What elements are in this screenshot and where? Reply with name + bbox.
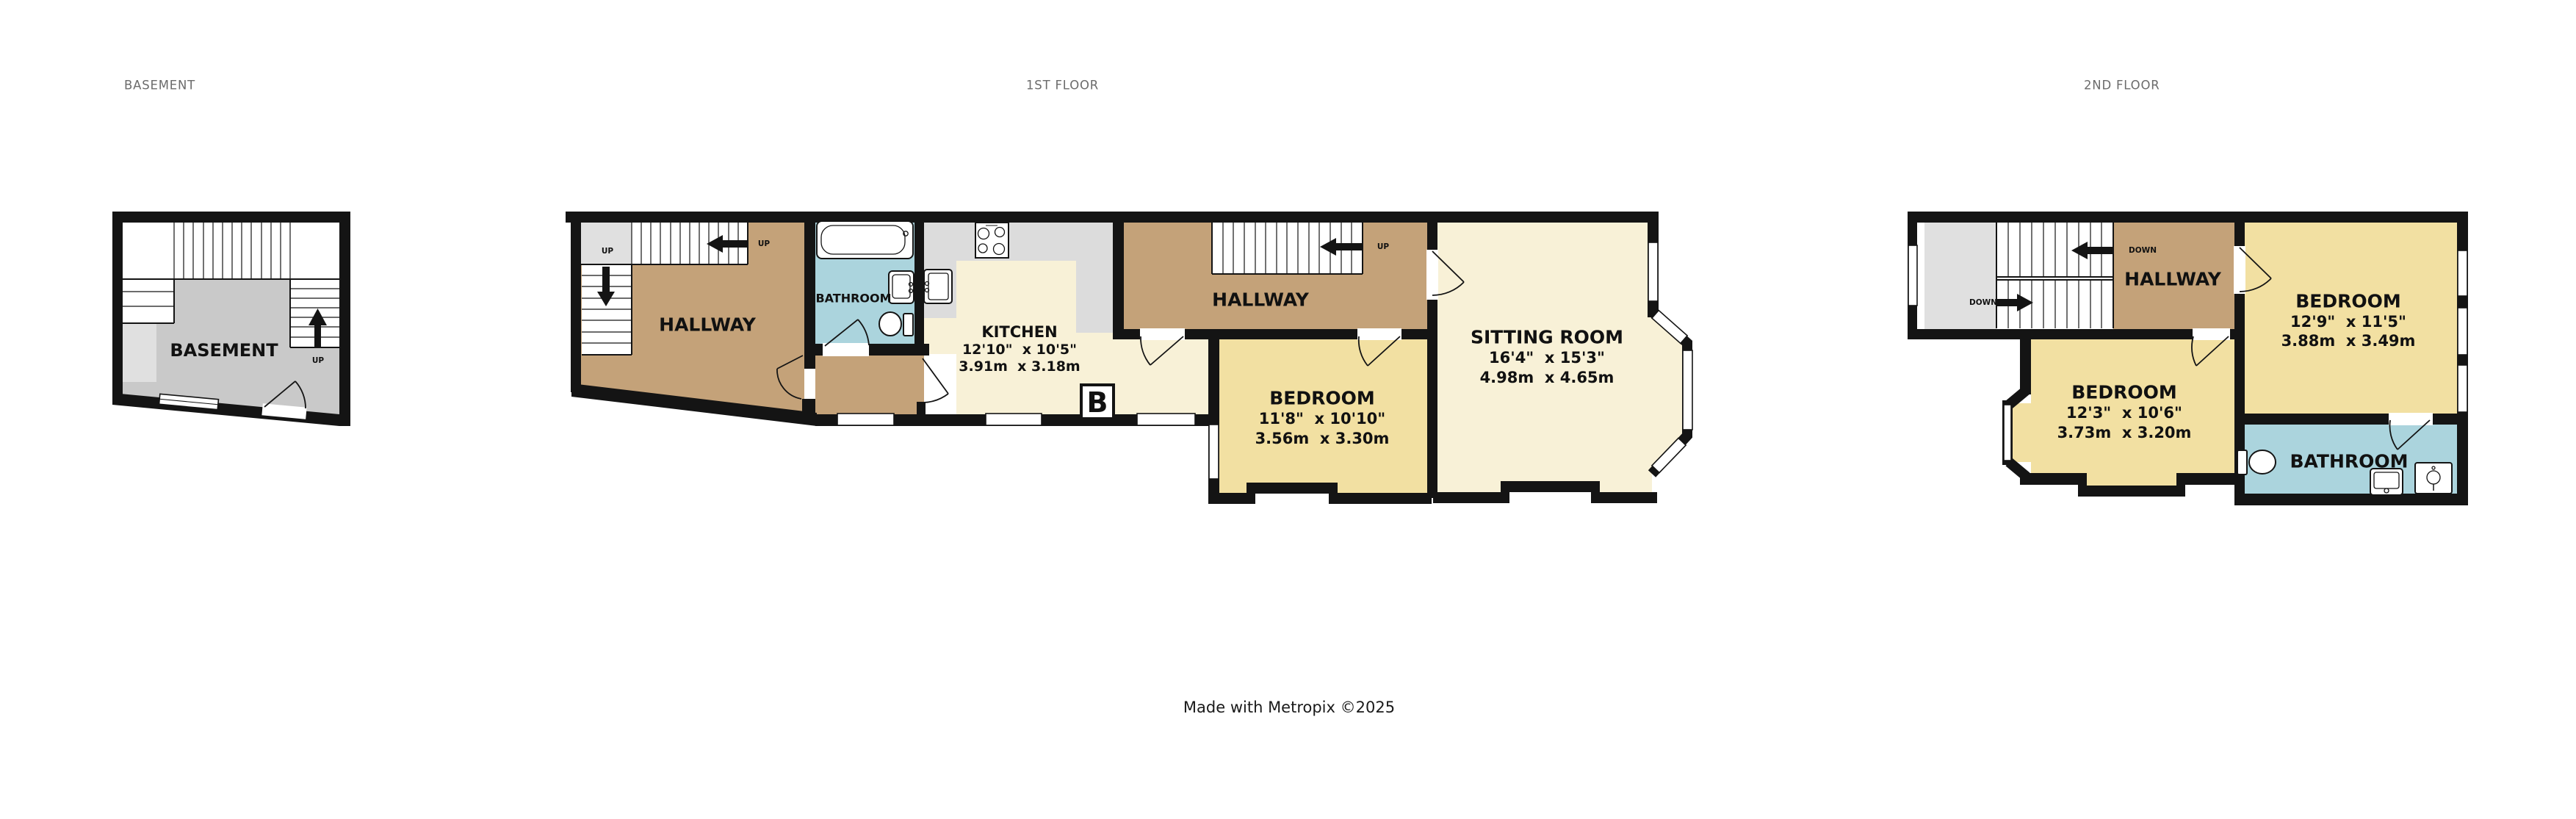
up-label-stairs: UP — [758, 239, 771, 248]
room-label-bedroom-2f-right: BEDROOM — [2295, 291, 2401, 312]
room-label-hallway-mid: HALLWAY — [1212, 289, 1310, 311]
second-floor-plan: DOWN DOWN HALLWAY BEDROOM 12'3" x 10'6" … — [1908, 212, 2468, 505]
room-label-basement: BASEMENT — [170, 340, 278, 361]
first-floor-plan: B UP UP HALLWAY BATHROOM KITCHEN 12'10" … — [566, 212, 1692, 504]
kitchen-dims-metric: 3.91m x 3.18m — [959, 358, 1080, 375]
up-label-landing: UP — [602, 247, 614, 256]
basement-shelves — [123, 279, 174, 323]
bedroom-2f-left-dims-imperial: 12'3" x 10'6" — [2066, 404, 2182, 422]
toilet — [2237, 450, 2276, 475]
bedroom-1f-dims-metric: 3.56m x 3.30m — [1255, 430, 1390, 447]
hallway-mid-stairs — [1212, 223, 1363, 274]
basement-up-label: UP — [312, 356, 325, 365]
basement-store-area — [123, 323, 156, 382]
room-label-hallway-left: HALLWAY — [659, 314, 757, 336]
room-label-bathroom-2f: BATHROOM — [2290, 451, 2408, 472]
bedroom-2f-right-dims-metric: 3.88m x 3.49m — [2281, 332, 2416, 350]
basement-stair-area — [123, 223, 339, 279]
floorplan-drawing: BASEMENT 1ST FLOOR 2ND FLOOR — [0, 0, 2576, 819]
toilet — [879, 312, 913, 336]
sitting-dims-imperial: 16'4" x 15'3" — [1489, 349, 1605, 367]
down-label-upper: DOWN — [2129, 246, 2157, 255]
bathroom-sink — [889, 271, 914, 303]
stair-landing-2f — [1924, 223, 1996, 329]
footer-credit: Made with Metropix ©2025 — [1183, 699, 1395, 716]
boiler-label: B — [1087, 386, 1108, 419]
floorplan-page: BASEMENT 1ST FLOOR 2ND FLOOR — [0, 0, 2576, 819]
bedroom-2f-right-dims-imperial: 12'9" x 11'5" — [2290, 313, 2406, 331]
room-label-bathroom-1f: BATHROOM — [815, 292, 891, 306]
bathtub — [817, 221, 913, 259]
bedroom-1f-dims-imperial: 11'8" x 10'10" — [1259, 410, 1386, 427]
kitchen-dims-imperial: 12'10" x 10'5" — [962, 342, 1077, 358]
room-label-kitchen: KITCHEN — [981, 323, 1057, 341]
room-label-sitting: SITTING ROOM — [1471, 327, 1623, 348]
room-label-bedroom-2f-left: BEDROOM — [2071, 382, 2177, 403]
basement-plan: BASEMENT UP — [112, 212, 350, 426]
stove-hob — [975, 223, 1009, 258]
floor-title-second: 2ND FLOOR — [2084, 79, 2160, 93]
room-label-hallway-2f: HALLWAY — [2124, 269, 2222, 290]
vestibule — [815, 354, 924, 416]
room-kitchen — [956, 261, 1076, 333]
down-label-lower: DOWN — [1969, 298, 1997, 307]
kitchen-sink — [924, 270, 952, 303]
corner-basin — [2415, 463, 2452, 494]
sitting-dims-metric: 4.98m x 4.65m — [1480, 369, 1614, 386]
floor-title-basement: BASEMENT — [124, 79, 195, 93]
bathroom-sink — [2370, 469, 2403, 495]
room-bedroom-2f-left-bay — [2013, 403, 2032, 462]
bedroom-2f-left-dims-metric: 3.73m x 3.20m — [2057, 424, 2192, 441]
room-label-bedroom-1f: BEDROOM — [1269, 388, 1375, 409]
floor-title-first: 1ST FLOOR — [1026, 79, 1099, 93]
stair-landing — [580, 223, 632, 264]
boiler-badge: B — [1081, 385, 1114, 419]
up-label-mid-stairs: UP — [1377, 242, 1390, 251]
